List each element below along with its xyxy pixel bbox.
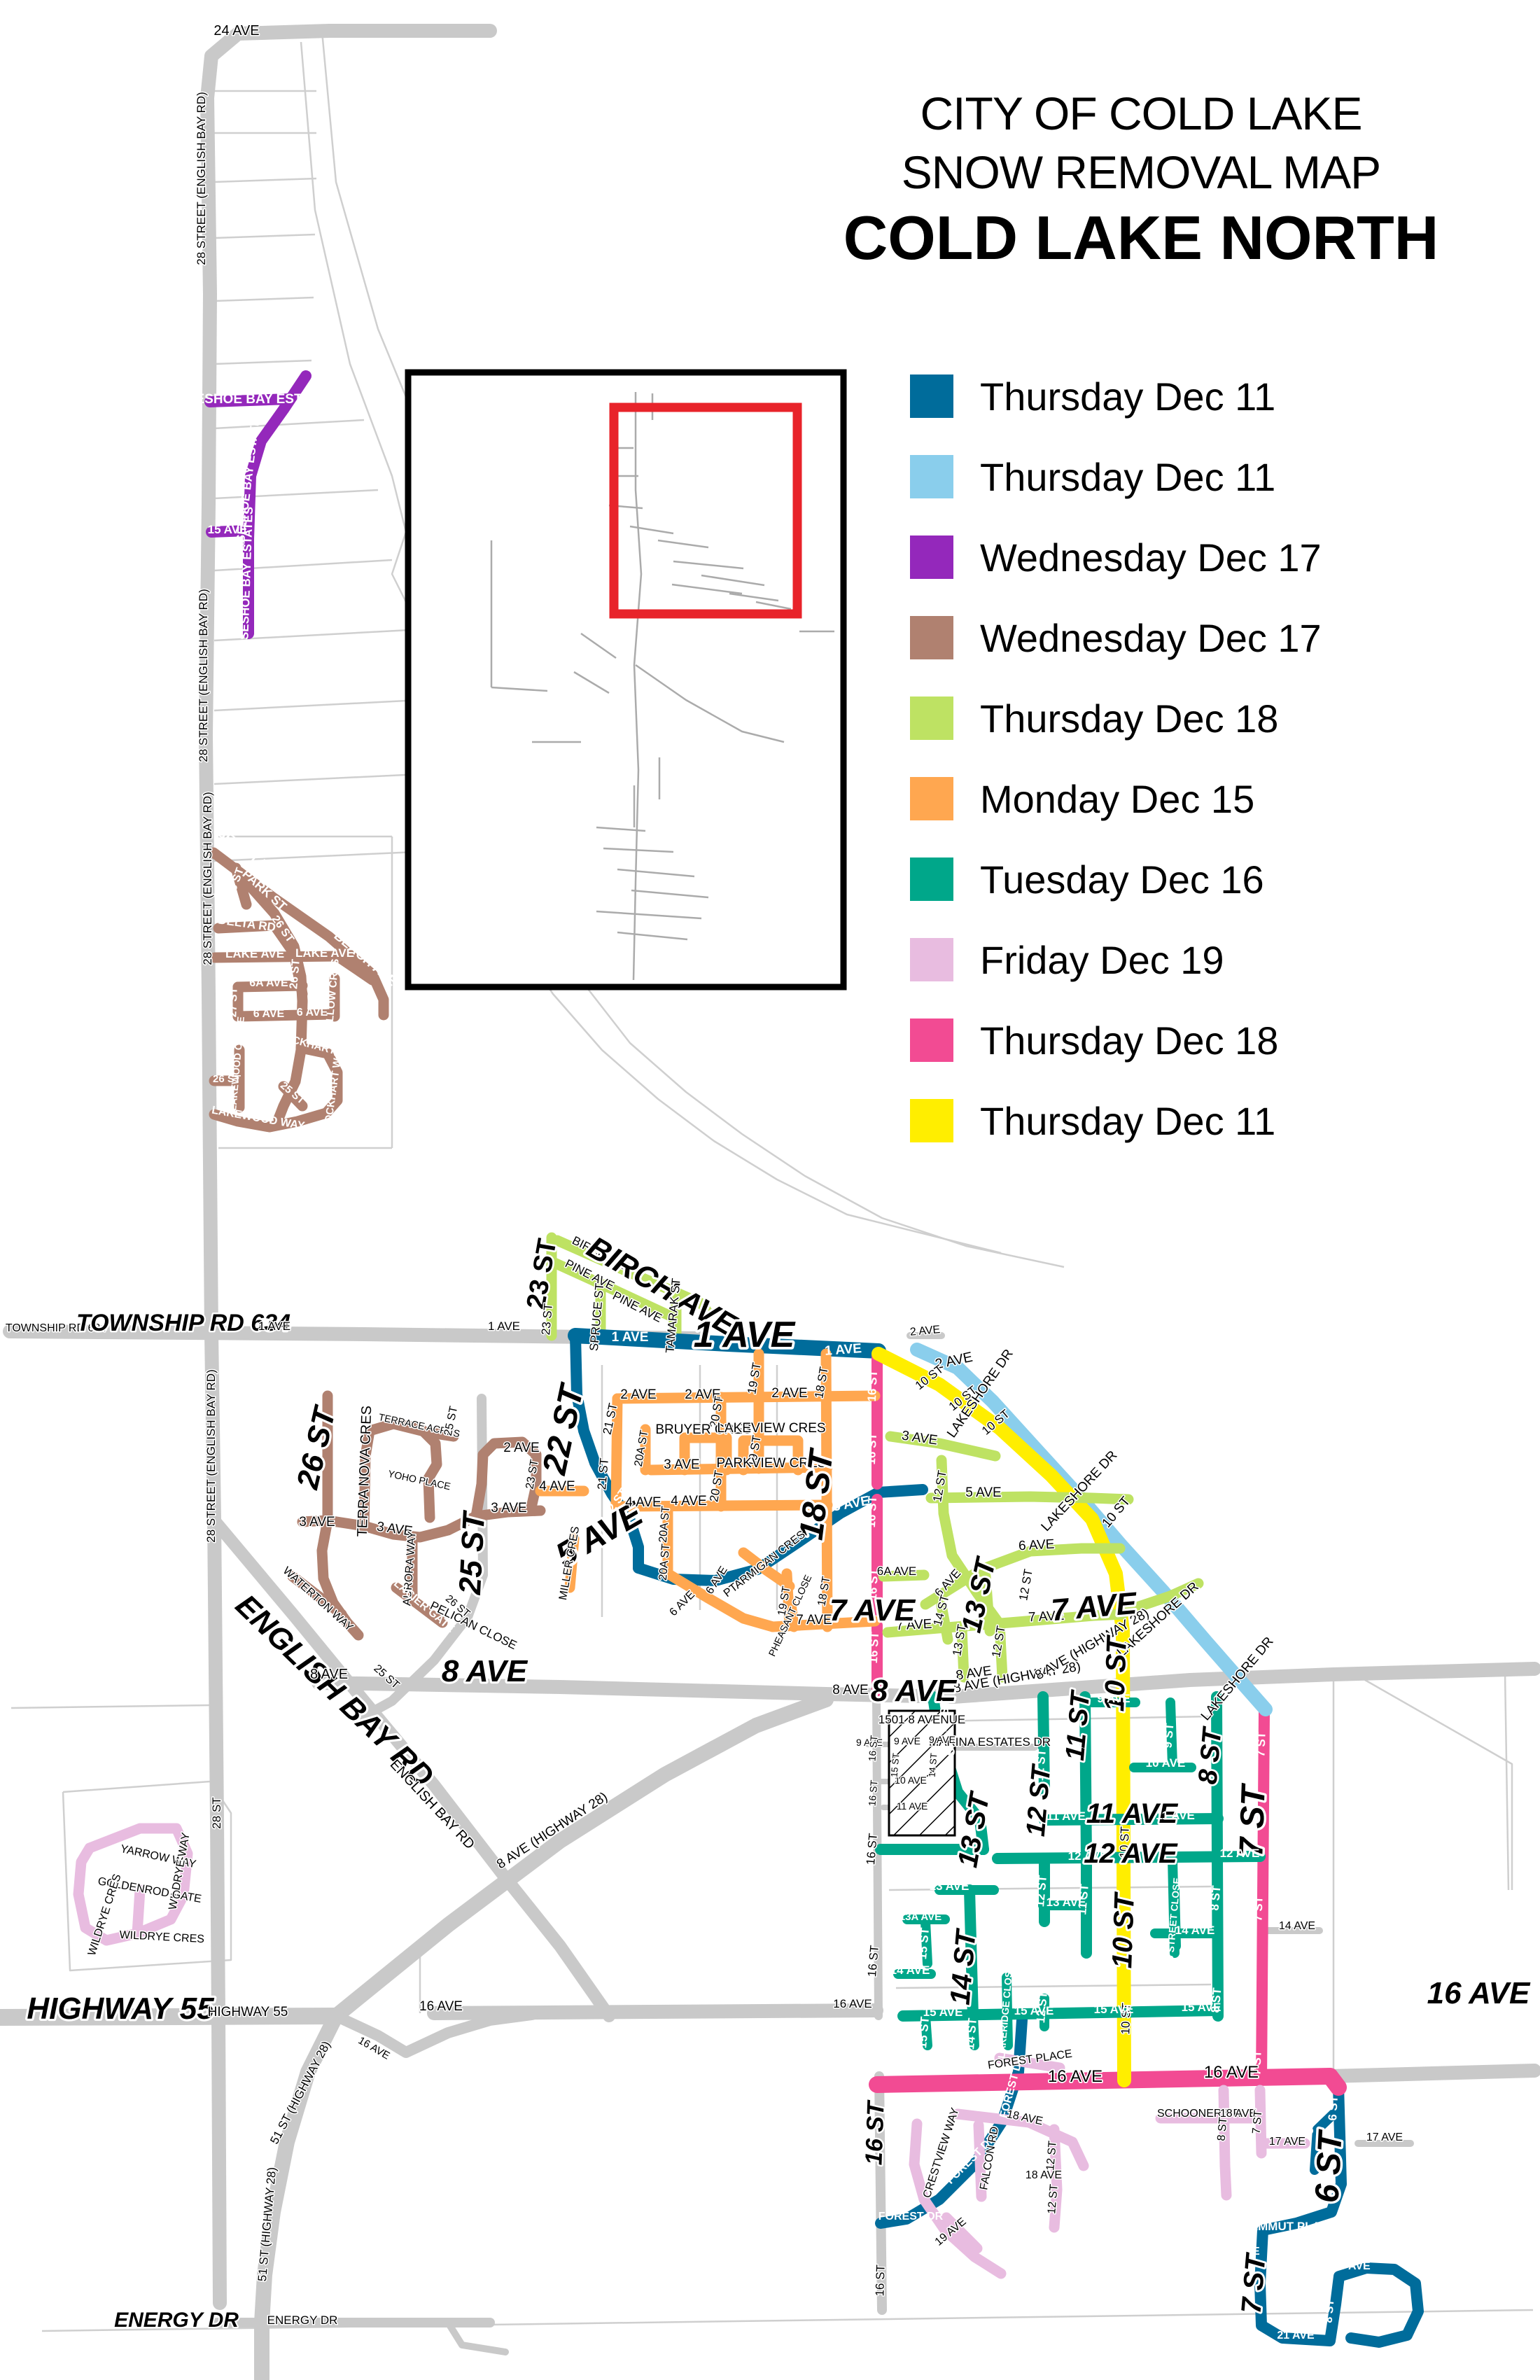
road-segment bbox=[207, 31, 490, 98]
street-label: 9 AVE bbox=[1097, 1692, 1130, 1705]
legend-swatch-lt_pink bbox=[910, 938, 953, 981]
street-label: 3 AVE bbox=[491, 1501, 526, 1515]
street-label: 8 AVE bbox=[442, 1654, 528, 1688]
legend-swatch-brown bbox=[910, 616, 953, 659]
street-label: 15 ST bbox=[889, 1753, 902, 1778]
legend-label: Wednesday Dec 17 bbox=[980, 535, 1322, 580]
street-label: 15 ST bbox=[916, 1926, 932, 1959]
street-label: 21 ST bbox=[595, 1457, 611, 1490]
street-label: 11 AVE bbox=[1156, 1809, 1195, 1822]
legend-label: Friday Dec 19 bbox=[980, 937, 1224, 983]
street-label: 23 ST bbox=[539, 1303, 555, 1336]
street-label: 4 AVE bbox=[539, 1479, 575, 1494]
street-label: 16 AVE bbox=[419, 1999, 463, 2014]
legend-label: Thursday Dec 11 bbox=[980, 454, 1275, 500]
legend-swatch-light_blue bbox=[910, 455, 953, 498]
legend-label: Thursday Dec 11 bbox=[980, 1098, 1275, 1144]
parcel-line bbox=[11, 1705, 210, 1708]
legend-item-2: Wednesday Dec 17 bbox=[910, 535, 1322, 580]
street-label: 16 ST bbox=[866, 1779, 879, 1807]
legend-label: Thursday Dec 18 bbox=[980, 696, 1278, 741]
inset-frame bbox=[408, 372, 843, 987]
legend-item-9: Thursday Dec 11 bbox=[910, 1098, 1322, 1143]
street-label: 6 ST bbox=[1326, 2095, 1340, 2121]
route-magenta bbox=[1261, 1712, 1264, 2080]
street-label: 14 AVE bbox=[1175, 1924, 1215, 1937]
street-label: 11 AVE bbox=[897, 1800, 928, 1812]
parcel-line bbox=[214, 178, 316, 182]
street-label: 20 AVE bbox=[1333, 2260, 1371, 2272]
street-label: 28 STREET (ENGLISH BAY RD) bbox=[195, 92, 208, 265]
street-label: 6 ST bbox=[1373, 2210, 1396, 2236]
street-label: HORSESHOE BAY ESTATES bbox=[157, 392, 336, 407]
parcel-line bbox=[214, 360, 311, 364]
street-label: 17 AVE bbox=[1366, 2131, 1403, 2143]
map-canvas: 24 AVE28 STREET (ENGLISH BAY RD)28 STREE… bbox=[0, 0, 1540, 2380]
street-label: 18 AVE bbox=[1025, 2169, 1062, 2181]
street-label: 26 ST bbox=[290, 1402, 343, 1492]
street-label: 7 ST bbox=[1251, 2110, 1265, 2134]
street-label: 28 STREET (ENGLISH BAY RD) bbox=[197, 589, 210, 762]
legend-item-6: Tuesday Dec 16 bbox=[910, 857, 1322, 902]
street-label: WILDRYE CRES bbox=[119, 1929, 204, 1945]
street-label: YOHO PLACE bbox=[387, 1468, 451, 1492]
street-label: 16 ST bbox=[864, 1432, 879, 1465]
street-label: 25 ST bbox=[453, 1509, 491, 1596]
street-label: 9 ST bbox=[1161, 1722, 1176, 1749]
street-label: 8 AVE bbox=[310, 1667, 348, 1682]
street-label: 8 AVE bbox=[832, 1683, 868, 1697]
street-label: 1 AVE bbox=[488, 1319, 520, 1333]
street-label: 16 ST bbox=[873, 2264, 888, 2297]
street-label: 12 ST bbox=[1021, 1763, 1057, 1837]
street-label: 28 STREET (ENGLISH BAY RD) bbox=[204, 1369, 218, 1543]
street-label: HIGHWAY 55 bbox=[27, 1991, 214, 2026]
street-label: 9 AVE bbox=[929, 1734, 955, 1745]
street-label: 24 AVE bbox=[213, 23, 259, 38]
street-label: ENERGY DR bbox=[267, 2313, 338, 2327]
street-label: 16 ST bbox=[867, 1631, 881, 1664]
street-label: 7 AVE bbox=[829, 1593, 916, 1627]
road-segment bbox=[1330, 2071, 1534, 2076]
street-label: 8 ST bbox=[1323, 2299, 1337, 2323]
street-label: 10 AVE bbox=[895, 1774, 927, 1786]
street-label: ENERGY DR bbox=[114, 2309, 239, 2332]
street-label: 16 AVE bbox=[833, 1997, 871, 2010]
street-label: 15 AVE bbox=[923, 2005, 963, 2019]
street-label: 6 AVE bbox=[1018, 1537, 1054, 1554]
route-dark_blue bbox=[878, 1490, 923, 1492]
route-magenta bbox=[1330, 2076, 1338, 2087]
parcel-line bbox=[1365, 1680, 1512, 1890]
street-label: 15 AVE bbox=[1182, 2001, 1221, 2014]
map-title-main: COLD LAKE NORTH bbox=[735, 202, 1540, 274]
map-title-line2: SNOW REMOVAL MAP bbox=[735, 143, 1540, 202]
street-label: 7 AVE bbox=[796, 1613, 832, 1627]
street-label: 16 ST bbox=[864, 1833, 880, 1865]
street-label: 8 ST bbox=[1207, 1884, 1223, 1911]
legend: Thursday Dec 11Thursday Dec 11Wednesday … bbox=[910, 374, 1322, 1179]
street-label: 11 ST bbox=[1060, 1688, 1096, 1762]
street-label: 7 ST bbox=[1251, 1896, 1265, 1921]
street-label: TERRA NOVA CRES bbox=[355, 1406, 375, 1537]
street-label: 6A AVE bbox=[249, 977, 288, 989]
street-label: 13 AVE bbox=[1046, 1896, 1086, 1909]
street-label: 16 ST bbox=[864, 1495, 879, 1528]
street-label: 9 AVE bbox=[894, 1735, 920, 1746]
street-label: 17 AVE bbox=[1269, 2136, 1305, 2148]
street-label: 28 ST bbox=[210, 1797, 223, 1828]
street-label: 6 AVE bbox=[297, 1007, 328, 1018]
street-label: 1501 8 AVENUE bbox=[878, 1713, 965, 1726]
street-label: 3 AVE bbox=[664, 1457, 699, 1472]
street-label: LAKE AVE bbox=[295, 946, 354, 960]
legend-item-8: Thursday Dec 18 bbox=[910, 1018, 1322, 1063]
street-label: 16 AVE bbox=[1204, 2063, 1259, 2082]
street-label: 12 AVE bbox=[1084, 1838, 1178, 1869]
route-dark_blue bbox=[1260, 2086, 1418, 2342]
street-label: WATERTON WAY bbox=[281, 1564, 356, 1634]
street-label: 1 AVE bbox=[612, 1330, 649, 1345]
parcel-line bbox=[896, 1984, 1211, 1988]
legend-swatch-magenta bbox=[910, 1018, 953, 1062]
street-label: 4 AVE bbox=[625, 1495, 661, 1510]
street-label: 4 AVE bbox=[671, 1494, 706, 1508]
inset-overview-map bbox=[408, 372, 843, 987]
street-label: 13 AVE bbox=[930, 1879, 969, 1893]
legend-item-3: Wednesday Dec 17 bbox=[910, 615, 1322, 660]
street-label: 1 AVE bbox=[825, 1341, 862, 1359]
street-label: 3 AVE bbox=[299, 1515, 335, 1529]
street-label: 1 AVE bbox=[258, 1319, 290, 1333]
street-label: 8 AVE (HIGHWAY 28) bbox=[494, 1789, 610, 1872]
legend-swatch-orange bbox=[910, 777, 953, 820]
legend-item-5: Monday Dec 15 bbox=[910, 776, 1322, 821]
street-label: LAKE AVE bbox=[225, 947, 284, 960]
street-label: SAMMUT PLACE bbox=[1242, 2220, 1338, 2233]
street-label: 13A AVE bbox=[899, 1911, 941, 1923]
street-label: 10 ST bbox=[1107, 1891, 1140, 1969]
street-label: 16 AVE bbox=[1048, 2067, 1102, 2086]
street-label: 8 ST bbox=[1193, 1725, 1228, 1785]
title-block: CITY OF COLD LAKE SNOW REMOVAL MAP COLD … bbox=[735, 84, 1540, 274]
route-lt_pink bbox=[1224, 2090, 1226, 2195]
street-label: 14 AVE bbox=[890, 1963, 930, 1977]
street-label: 14 AVE bbox=[1279, 1920, 1315, 1932]
street-label: 1 AVE bbox=[694, 1315, 796, 1355]
street-label: 7 ST bbox=[1254, 1731, 1268, 1757]
street-label: 2 AVE bbox=[620, 1387, 656, 1402]
legend-label: Monday Dec 15 bbox=[980, 776, 1254, 822]
route-lt_green bbox=[931, 1497, 1128, 1499]
street-label: 27 ST bbox=[227, 987, 239, 1017]
route-lt_pink bbox=[137, 1890, 140, 1933]
street-label: 16 ST bbox=[866, 1735, 879, 1762]
parcel-line bbox=[214, 420, 364, 428]
street-label: 16 ST bbox=[860, 2099, 889, 2165]
street-label: 15 AVE bbox=[208, 523, 248, 536]
parcel-line bbox=[214, 297, 314, 301]
street-label: 6 ST bbox=[1308, 2129, 1349, 2204]
street-label: 7 ST bbox=[1235, 2250, 1272, 2315]
route-magenta bbox=[877, 2076, 1330, 2085]
street-label: 6 AVE bbox=[253, 1008, 285, 1020]
legend-swatch-yellow bbox=[910, 1099, 953, 1142]
street-label: 28 STREET (ENGLISH BAY RD) bbox=[201, 792, 214, 965]
legend-item-0: Thursday Dec 11 bbox=[910, 374, 1322, 419]
street-label: 6A AVE bbox=[877, 1564, 916, 1578]
legend-swatch-lt_green bbox=[910, 696, 953, 740]
street-label: LOCKHART WAY bbox=[276, 1030, 361, 1064]
street-label: 12 AVE bbox=[1220, 1847, 1260, 1860]
street-label: 5 AVE bbox=[965, 1485, 1001, 1500]
street-label: HIGHWAY 55 bbox=[208, 2005, 288, 2019]
legend-item-1: Thursday Dec 11 bbox=[910, 454, 1322, 499]
legend-label: Thursday Dec 18 bbox=[980, 1018, 1278, 1063]
map-title-line1: CITY OF COLD LAKE bbox=[735, 84, 1540, 143]
legend-swatch-teal bbox=[910, 857, 953, 901]
snow-removal-map-page: 24 AVE28 STREET (ENGLISH BAY RD)28 STREE… bbox=[0, 0, 1540, 2380]
legend-swatch-purple bbox=[910, 535, 953, 579]
street-label: 16 ST bbox=[865, 1369, 880, 1402]
legend-label: Tuesday Dec 16 bbox=[980, 857, 1264, 902]
street-label: 11 AVE bbox=[1046, 1809, 1086, 1823]
street-label: 8 ST bbox=[1304, 2110, 1318, 2134]
parcel-line bbox=[214, 773, 434, 784]
legend-swatch-dark_blue bbox=[910, 374, 953, 418]
legend-label: Thursday Dec 11 bbox=[980, 374, 1275, 419]
parcel-line bbox=[1505, 1673, 1508, 1890]
street-label: LAKEVIEW CRES bbox=[717, 1421, 825, 1436]
street-label: 16 ST bbox=[865, 1945, 881, 1977]
road-segment bbox=[434, 2010, 876, 2013]
street-label: 15 AVE bbox=[1014, 2004, 1054, 2017]
street-label: 14 ST bbox=[963, 2017, 979, 2050]
street-label: 6 AVE bbox=[667, 1588, 697, 1618]
street-label: 51 ST (HIGHWAY 28) bbox=[267, 2039, 333, 2147]
street-label: 14 ST bbox=[927, 1753, 939, 1778]
street-label: 2 AVE bbox=[503, 1441, 539, 1455]
legend-item-7: Friday Dec 19 bbox=[910, 937, 1322, 982]
street-label: 21 AVE bbox=[1277, 2330, 1315, 2341]
street-label: FOREST DR bbox=[878, 2211, 944, 2222]
street-label: 15 ST bbox=[916, 2015, 932, 2048]
street-label: 15 AVE bbox=[1094, 2003, 1134, 2016]
parcel-line bbox=[214, 700, 420, 710]
street-label: PTARMIGAN CRES bbox=[722, 1529, 808, 1599]
legend-label: Wednesday Dec 17 bbox=[980, 615, 1322, 661]
parcel-line bbox=[214, 234, 315, 238]
street-label: 10 AVE bbox=[1146, 1756, 1186, 1770]
street-label: 12 ST bbox=[1016, 1568, 1035, 1602]
street-label: 8 ST bbox=[1216, 2117, 1230, 2141]
street-label: 3 AVE bbox=[901, 1429, 939, 1448]
legend-item-4: Thursday Dec 18 bbox=[910, 696, 1322, 741]
street-label: 2 AVE bbox=[771, 1386, 807, 1401]
street-label: 16 AVE bbox=[1427, 1976, 1531, 2010]
